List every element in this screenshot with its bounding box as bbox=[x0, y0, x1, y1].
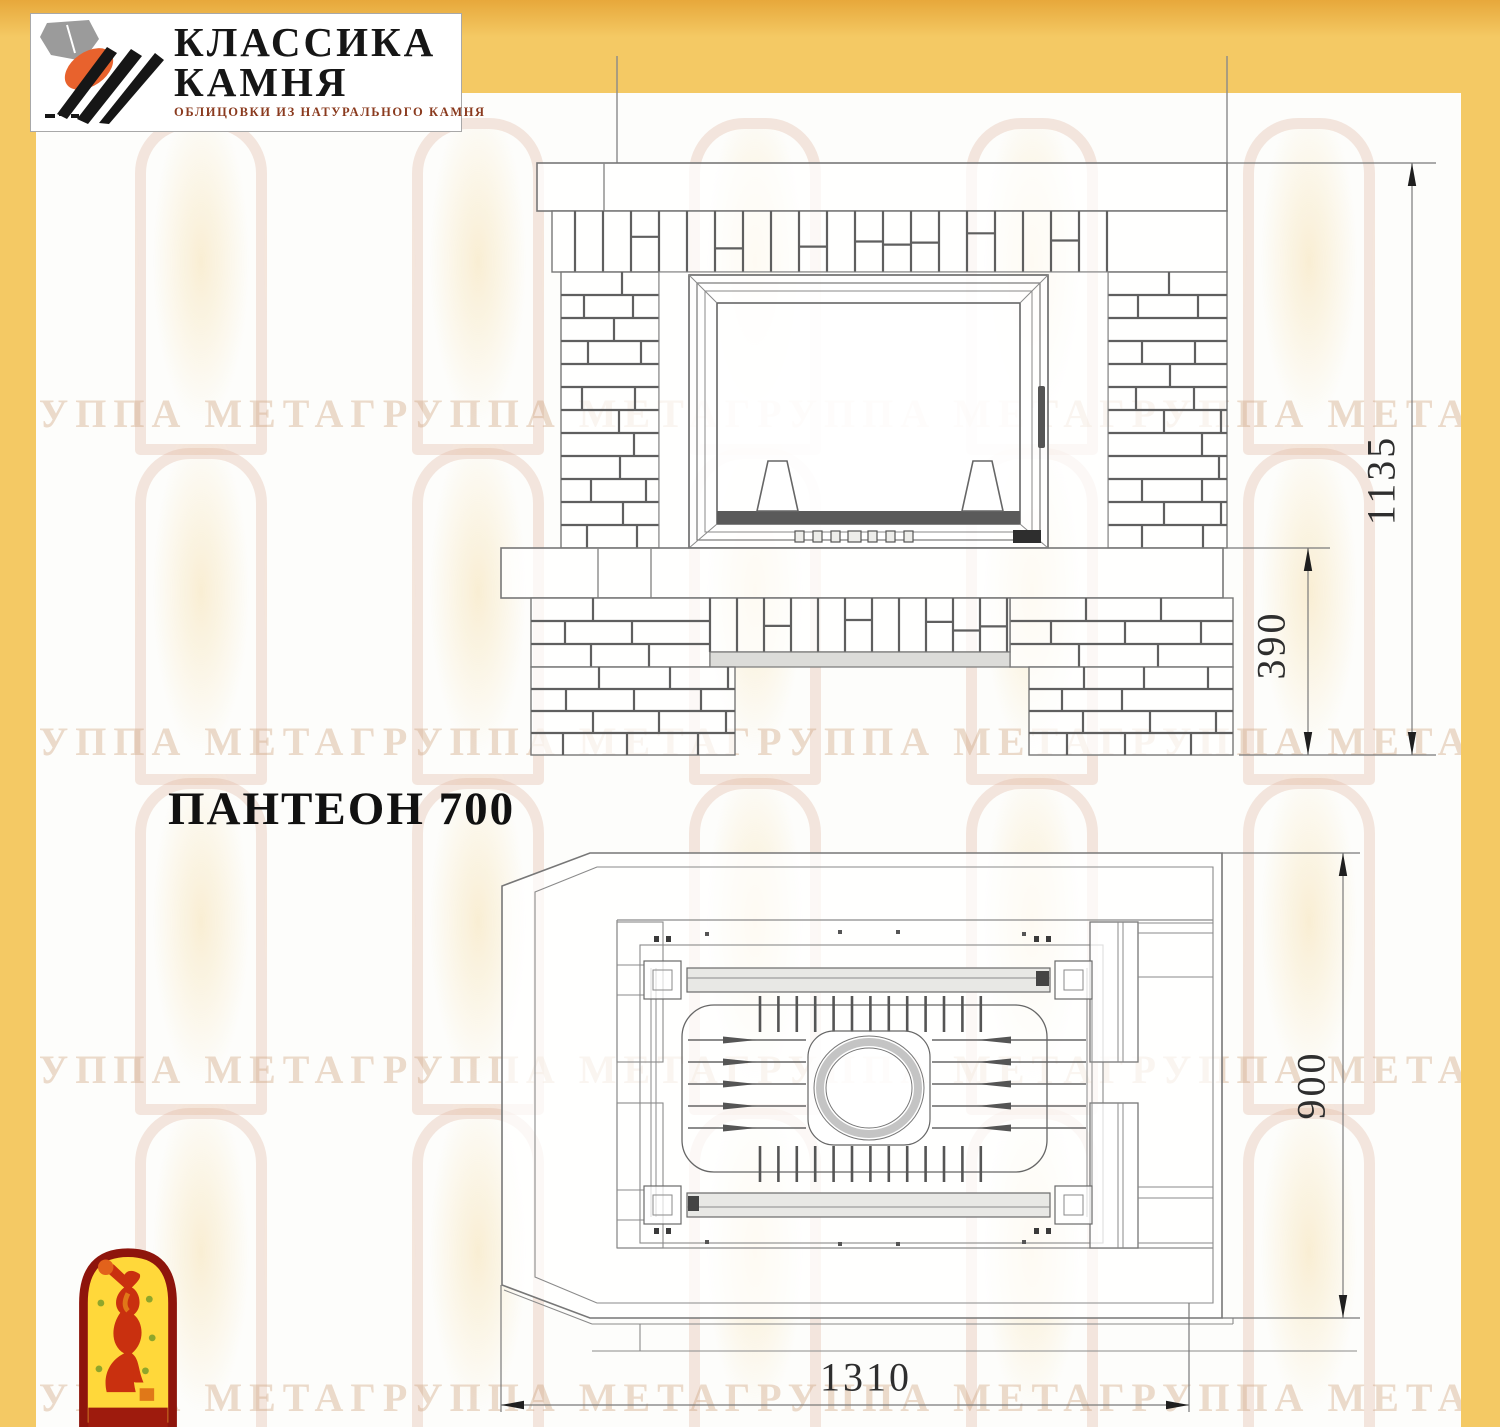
arch-figure-emblem bbox=[78, 1243, 178, 1427]
watermark-text-row: ГРУППА МЕТАГРУППА МЕТАГРУППА МЕТАГРУППА … bbox=[36, 718, 1461, 765]
stone-logo-icon bbox=[37, 19, 172, 124]
logo-text-block: КЛАССИКА КАМНЯ ОБЛИЦОВКИ ИЗ НАТУРАЛЬНОГО… bbox=[174, 14, 486, 120]
watermark-text-row: ГРУППА МЕТАГРУППА МЕТАГРУППА МЕТАГРУППА … bbox=[36, 1374, 1461, 1421]
page-border-right bbox=[1461, 93, 1500, 1427]
page-border-left bbox=[0, 93, 36, 1427]
emblem-base bbox=[88, 1408, 167, 1427]
dim-label-total-height: 1135 bbox=[1358, 435, 1405, 526]
watermark-layer: ГРУППА МЕТАГРУППА МЕТАГРУППА МЕТАГРУППА … bbox=[36, 93, 1461, 1427]
dim-label-plinth-height: 390 bbox=[1248, 611, 1295, 680]
watermark-text-row: ГРУППА МЕТАГРУППА МЕТАГРУППА МЕТАГРУППА … bbox=[36, 390, 1461, 437]
logo-title-line2: КАМНЯ bbox=[174, 62, 486, 102]
drawing-title: ПАНТЕОН 700 bbox=[168, 782, 515, 836]
dim-label-width: 1310 bbox=[820, 1354, 912, 1401]
logo-subtitle: ОБЛИЦОВКИ ИЗ НАТУРАЛЬНОГО КАМНЯ bbox=[174, 105, 486, 120]
logo: КЛАССИКА КАМНЯ ОБЛИЦОВКИ ИЗ НАТУРАЛЬНОГО… bbox=[30, 13, 462, 132]
dim-label-depth: 900 bbox=[1288, 1051, 1335, 1120]
watermark-text-row: ГРУППА МЕТАГРУППА МЕТАГРУППА МЕТАГРУППА … bbox=[36, 1046, 1461, 1093]
logo-title-line1: КЛАССИКА bbox=[174, 22, 486, 62]
